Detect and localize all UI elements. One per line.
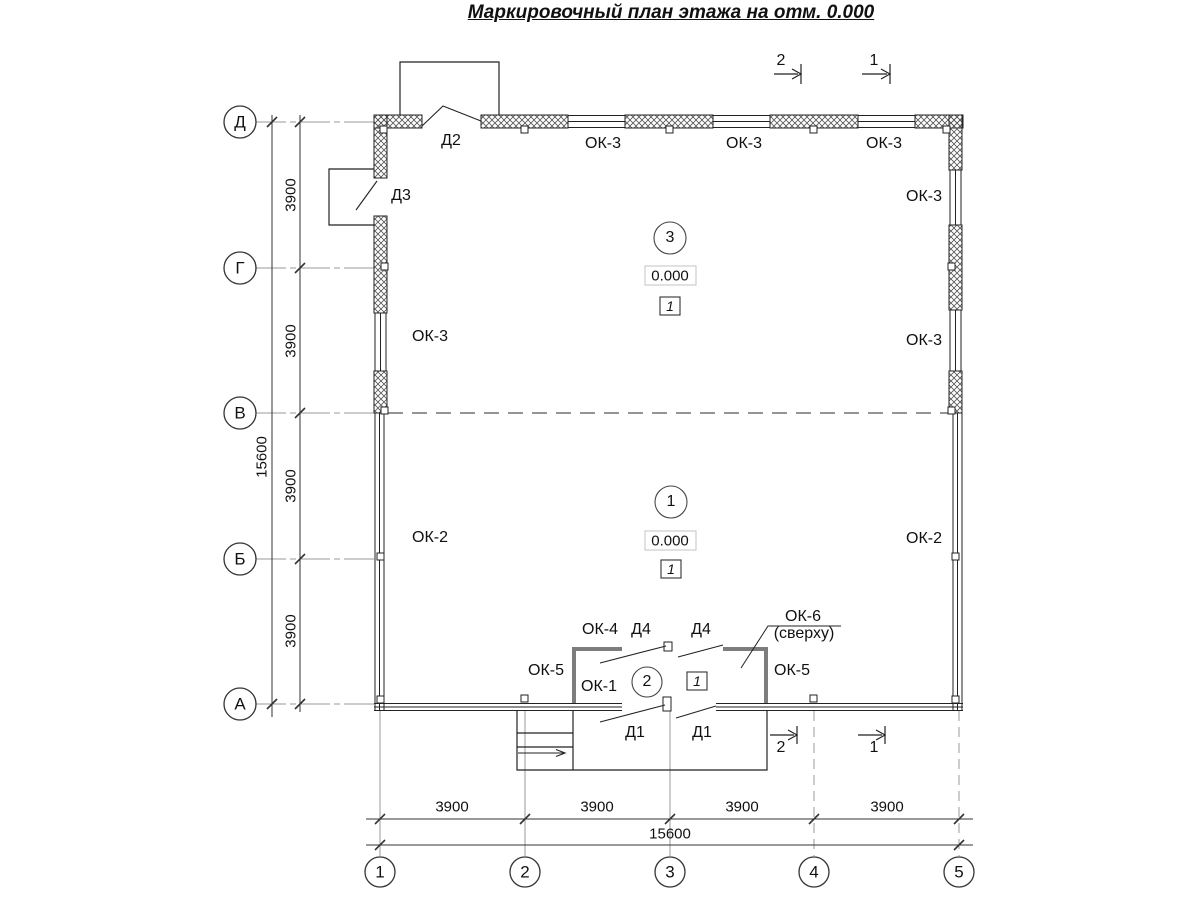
label-window-ok4: ОК-4	[582, 622, 618, 638]
label-window-ok3-top-3: ОК-3	[866, 136, 902, 152]
section-mark-2-bottom: 2	[777, 740, 786, 756]
label-window-ok5-left: ОК-5	[528, 663, 564, 679]
label-door-d4-right: Д4	[691, 622, 711, 638]
dim-bottom-3900-3: 3900	[725, 800, 758, 815]
axis-row-label-b: Б	[234, 551, 245, 568]
room-3-floor-type: 1	[666, 299, 674, 313]
label-window-ok3-top-1: ОК-3	[585, 136, 621, 152]
axis-col-label-1: 1	[375, 864, 384, 881]
axis-col-label-2: 2	[520, 864, 529, 881]
annotation-layer: ДГВБА12345390039003900390015600390039003…	[0, 0, 1200, 900]
label-window-ok6: ОК-6	[785, 609, 821, 625]
label-window-ok2-right: ОК-2	[906, 531, 942, 547]
dim-bottom-3900-4: 3900	[870, 800, 903, 815]
label-window-ok3-top-2: ОК-3	[726, 136, 762, 152]
dim-bottom-total-15600: 15600	[649, 827, 691, 842]
label-door-d1-left: Д1	[625, 725, 645, 741]
axis-row-label-a: А	[234, 696, 245, 713]
dim-left-3900-1: 3900	[284, 178, 299, 211]
label-window-ok5-right: ОК-5	[774, 663, 810, 679]
axis-row-label-v: В	[234, 405, 245, 422]
axis-row-label-g: Г	[235, 260, 244, 277]
axis-row-label-d: Д	[234, 114, 246, 131]
room-1-number: 1	[667, 494, 676, 510]
label-window-ok1: ОК-1	[581, 679, 617, 695]
axis-col-label-4: 4	[809, 864, 818, 881]
dim-bottom-3900-2: 3900	[580, 800, 613, 815]
room-2-floor-type: 1	[693, 674, 701, 688]
floor-plan-canvas: Маркировочный план этажа на отм. 0.000	[0, 0, 1200, 900]
label-window-ok3-right-upper: ОК-3	[906, 189, 942, 205]
room-3-elevation: 0.000	[651, 269, 689, 284]
section-mark-1-top: 1	[870, 53, 879, 69]
room-2-number: 2	[643, 674, 652, 690]
room-1-floor-type: 1	[667, 562, 675, 576]
room-3-number: 3	[666, 230, 675, 246]
label-window-ok3-right-lower: ОК-3	[906, 333, 942, 349]
dim-left-3900-2: 3900	[284, 324, 299, 357]
label-door-d1-right: Д1	[692, 725, 712, 741]
room-1-elevation: 0.000	[651, 534, 689, 549]
dim-left-total-15600: 15600	[255, 436, 270, 478]
label-door-d2: Д2	[441, 133, 461, 149]
label-door-d3: Д3	[391, 188, 411, 204]
section-mark-2-top: 2	[777, 53, 786, 69]
label-window-ok2-left: ОК-2	[412, 530, 448, 546]
dim-bottom-3900-1: 3900	[435, 800, 468, 815]
section-mark-1-bottom: 1	[870, 740, 879, 756]
axis-col-label-5: 5	[954, 864, 963, 881]
label-window-ok6-note: (сверху)	[774, 626, 835, 642]
dim-left-3900-4: 3900	[284, 614, 299, 647]
axis-col-label-3: 3	[665, 864, 674, 881]
label-door-d4-left: Д4	[631, 622, 651, 638]
label-window-ok3-left: ОК-3	[412, 329, 448, 345]
dim-left-3900-3: 3900	[284, 469, 299, 502]
